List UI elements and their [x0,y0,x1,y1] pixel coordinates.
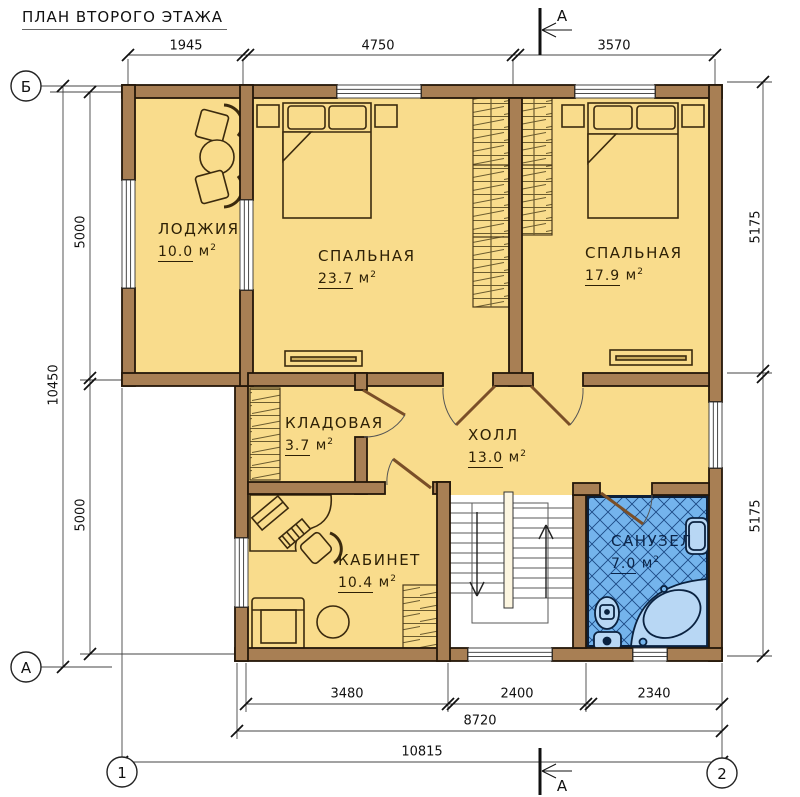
glazed-opening-loggia [240,200,253,290]
dim-top-4750: 4750 [361,39,394,54]
stair-divider [504,492,513,608]
floor-plan: ПЛАН ВТОРОГО ЭТАЖА 1945 4750 3570 10450 … [0,0,800,797]
wardrobe-office [403,585,437,648]
office-label: КАБИНЕТ 10.4 м2 [338,551,421,593]
window-bath-bottom [633,648,667,661]
bed2-nightstand-right [682,105,704,127]
loggia-chair-bottom [195,170,229,204]
bathtub-drain [661,586,667,592]
window-stair-bottom [468,648,552,661]
window-loggia-west [122,180,135,288]
bed1-nightstand-left [257,105,279,127]
bed2-nightstand-left [562,105,584,127]
bedroom2-label: СПАЛЬНАЯ 17.9 м2 [585,244,683,286]
loggia-table [200,140,234,174]
window-bedroom1-top [337,85,421,98]
toilet-button [604,638,611,645]
window-bedroom2-top [575,85,655,98]
section-label-top: А [557,7,567,25]
bed1-nightstand-right [375,105,397,127]
dim-top-3570: 3570 [597,39,630,54]
storeroom-label: КЛАДОВАЯ 3.7 м2 [285,414,384,456]
bedroom1-label: СПАЛЬНАЯ 23.7 м2 [318,247,416,289]
bed2-pillow-left [594,106,632,129]
dim-left-upper: 5000 [74,215,89,248]
loggia-chair-top [195,109,229,143]
wardrobe-storeroom [250,388,280,480]
page-title: ПЛАН ВТОРОГО ЭТАЖА [22,8,227,30]
office-table [317,606,349,638]
window-office-west [235,538,248,607]
hall-label: ХОЛЛ 13.0 м2 [468,426,527,468]
dim-right-lower: 5175 [749,499,764,532]
axis-label-B: Б [21,78,31,96]
axis-label-A: А [21,659,31,677]
section-label-bottom: А [557,777,567,795]
dim-bottom-10815: 10815 [401,745,442,760]
dim-bottom-3480: 3480 [330,687,363,702]
bed2-pillow-right [637,106,675,129]
dim-bottom-2400: 2400 [500,687,533,702]
loggia-label: ЛОДЖИЯ 10.0 м2 [158,220,240,262]
dim-bottom-8720: 8720 [463,714,496,729]
office-armchair-seat [261,610,296,643]
dim-right-upper: 5175 [749,210,764,243]
bed1-pillow-left [288,106,325,129]
dim-bottom-2340: 2340 [637,687,670,702]
bathroom-label: САНУЗЕЛ 7.0 м2 [611,532,693,574]
axis-label-2: 2 [717,765,727,783]
bathtub-tap [640,639,647,646]
bed1-pillow-right [329,106,366,129]
dim-left-overall: 10450 [47,364,62,405]
floor-plan-drawing [0,0,800,797]
dim-top-1945: 1945 [169,39,202,54]
dim-left-lower: 5000 [74,498,89,531]
axis-label-1: 1 [117,764,127,782]
window-hall-east [709,402,722,468]
